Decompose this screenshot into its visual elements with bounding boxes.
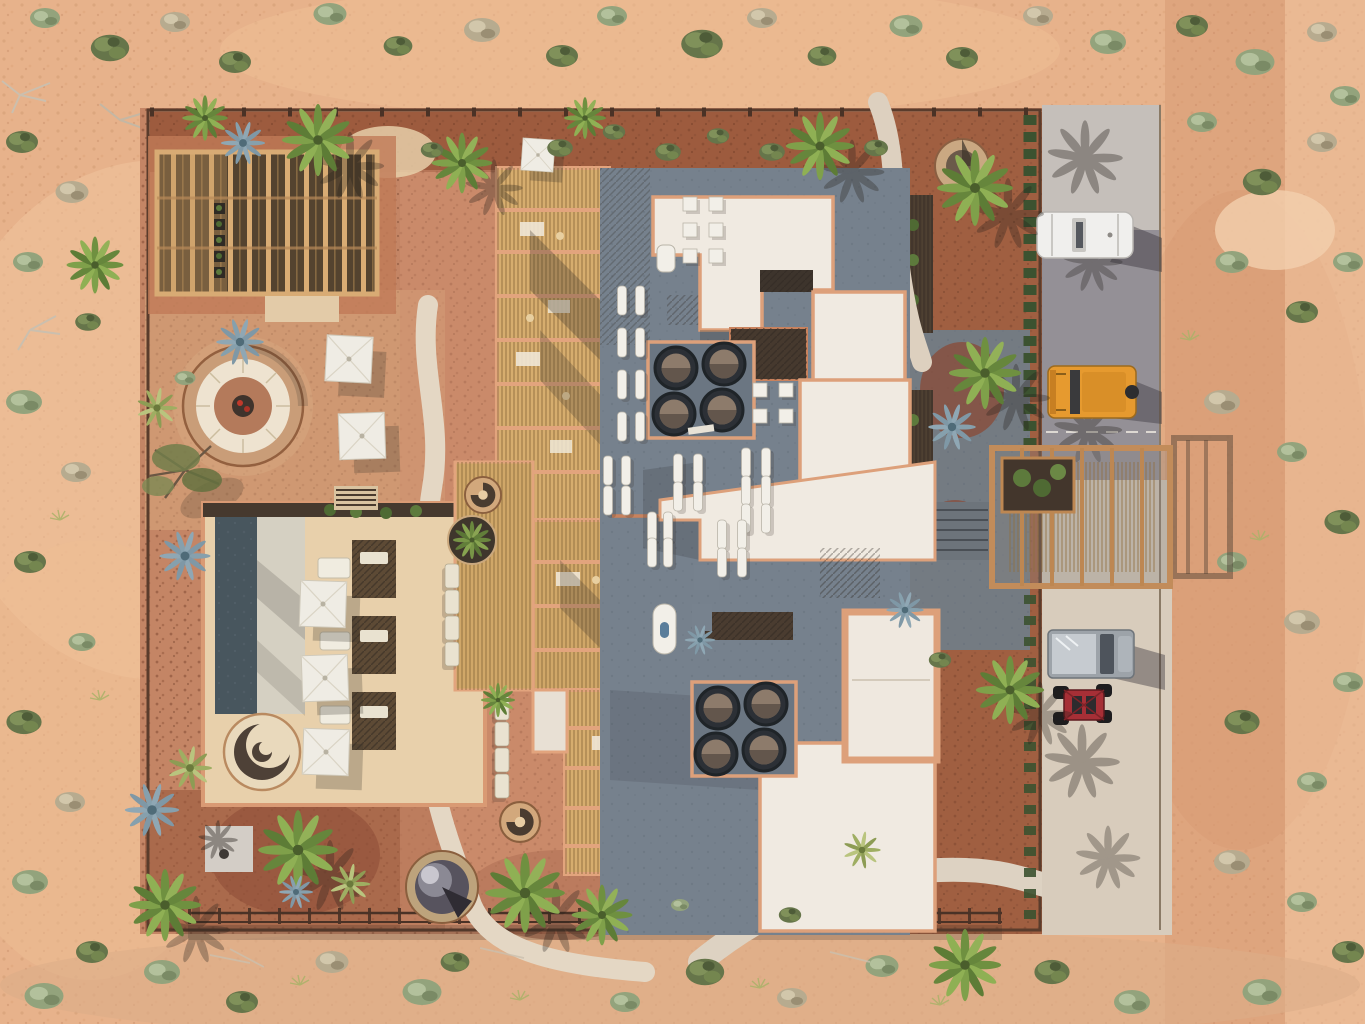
shrub [1216,251,1249,273]
sun-lounger [442,642,459,670]
shrub [1307,22,1337,42]
garden-bush [175,371,196,385]
shrub [1090,30,1126,54]
shrub [1284,610,1320,634]
sun-lounger [442,564,459,592]
domed-pavilion [406,851,478,923]
spiral-spa [224,714,300,790]
shrub [56,181,89,203]
shrub [777,988,807,1008]
shrub [597,6,627,26]
fire-pit-center [232,395,254,417]
shrub [25,983,64,1009]
shrub [610,992,640,1012]
shrub [1297,772,1327,792]
shrub [1333,252,1363,272]
garden-bush [547,139,573,157]
garden-bush [671,899,689,911]
shrub [30,8,60,28]
shrub [1307,132,1337,152]
shrub [946,47,978,69]
sun-lounger [442,616,459,644]
shrub [1114,990,1150,1014]
sun-lounger [492,722,509,750]
shrub [747,8,777,28]
shrub [160,12,190,32]
shrub [314,3,347,25]
round-vent [695,733,737,775]
shrub [1332,941,1364,963]
shrub [219,51,251,73]
round-vent [743,729,785,771]
shaded-patio [198,820,253,872]
shrub [1187,112,1217,132]
shrub [1236,49,1275,75]
shrub [1333,672,1363,692]
shrub [1286,301,1318,323]
shrub [6,131,38,153]
shrub [316,951,349,973]
shrub [91,35,129,61]
sun-lounger [492,748,509,776]
courtyard-building [845,612,937,760]
shrub [144,960,180,984]
round-vent-cluster-south [692,682,796,776]
shrub [403,979,442,1005]
sun-lounger [492,774,509,802]
shrub [384,36,413,56]
garden-bush [603,124,625,139]
shrub [546,45,578,67]
shrub [1224,710,1259,734]
shrub [441,952,470,972]
shrub [69,633,96,651]
shrub [6,710,41,734]
spa-capsule [653,604,676,654]
shrub [13,252,43,272]
shrub [76,941,108,963]
shrub [61,462,91,482]
spiral-staircase [465,477,501,513]
trellis-patch [820,548,880,598]
stair-bulkhead [694,565,719,590]
shrub [1287,892,1317,912]
shrub [1243,169,1281,195]
shrub [6,390,42,414]
carport-planter [1002,458,1074,512]
shrub [1176,15,1208,37]
round-vent [745,683,787,725]
shrub [1324,510,1359,534]
shrub [464,18,500,42]
shrub [1204,390,1240,414]
pergola-terrace [265,296,339,322]
pool-steps [334,486,378,510]
garden-bush [929,652,951,667]
shrub [808,46,837,66]
spa-deck [442,462,533,690]
sun-lounger [442,590,459,618]
garden-bush [759,143,785,161]
garden-bush [864,140,888,157]
cabana-pads [352,540,396,750]
shrub [75,313,101,331]
round-vent [697,687,739,729]
shrub [890,15,923,37]
round-vent [655,347,697,389]
aerial-rendering [0,0,1365,1024]
shrub [681,30,723,59]
shrub [866,955,899,977]
shrub [1023,6,1053,26]
round-vent [703,343,745,385]
spiral-staircase [500,802,540,842]
garden-bush [421,142,443,157]
shrub [1243,979,1282,1005]
shrub [1330,86,1360,106]
garden-bush [707,128,729,143]
shrub [1277,442,1307,462]
shrub [14,551,46,573]
shrub [12,870,48,894]
pool-house [533,690,567,752]
scene-canvas [0,0,1365,1024]
round-vent-cluster-north [648,342,754,438]
garden-steps [930,502,990,560]
garden-bush [655,143,681,161]
shrub [686,959,724,985]
round-vent [701,389,743,431]
main-building-roofs [600,168,937,935]
shrub [1214,850,1250,874]
shrub [55,792,85,812]
tree-planter [448,516,496,564]
daybed [318,558,350,578]
shrub [226,991,258,1013]
shrub [1034,960,1069,984]
garden-bush [779,907,801,922]
